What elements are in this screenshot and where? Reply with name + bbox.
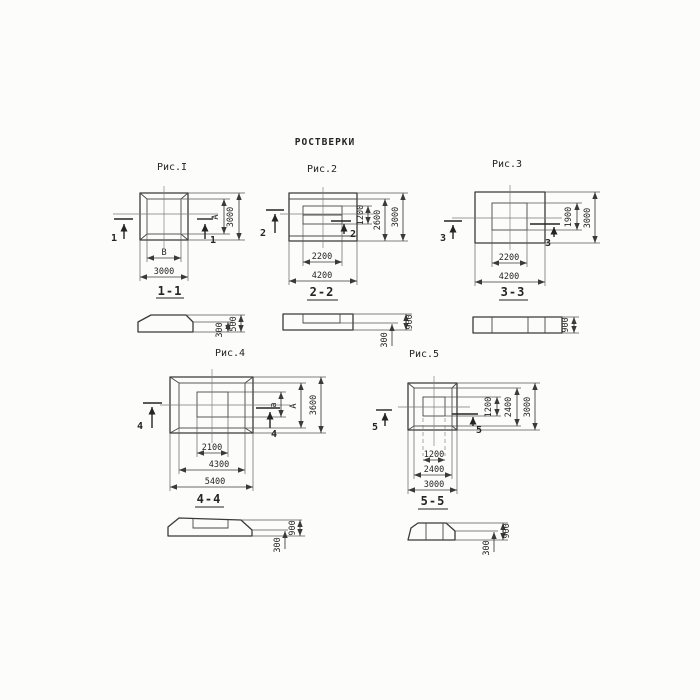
fig5-section-label-300: 300: [482, 540, 492, 555]
fig3-dim-label-2200: 2200: [499, 253, 519, 263]
fig5-cut-number-left: 5: [372, 422, 378, 433]
fig4-dim-label-2100: 2100: [202, 443, 222, 453]
fig1-dim-label-3000-v: 3000: [226, 207, 236, 227]
fig3-extension-lines: [475, 192, 600, 286]
fig2-section-label-300: 300: [380, 332, 390, 347]
fig3-cut-number-left: 3: [440, 233, 446, 244]
fig5-section-title: 5-5: [421, 494, 446, 508]
fig2-cut-number-left: 2: [260, 228, 266, 239]
fig4-dim-label-3600: 3600: [309, 395, 319, 415]
fig4-section-title: 4-4: [197, 492, 222, 506]
fig2-dim-label-2600: 2600: [373, 210, 383, 230]
sheet-title: РОСТВЕРКИ: [295, 137, 355, 148]
fig4-plan-inner: [197, 392, 228, 417]
fig4-dim-label-4300: 4300: [209, 460, 229, 470]
fig5-dim-label-2400-h: 2400: [424, 465, 444, 475]
fig1-cut-number-left: 1: [111, 233, 117, 244]
fig4-caption: Рис.4: [215, 348, 245, 359]
fig2-cut-number-right: 2: [350, 229, 356, 240]
fig2-section-leaders: [340, 314, 412, 330]
fig3-dim-label-3000: 3000: [583, 208, 593, 228]
fig1-section-label-300: 300: [215, 322, 225, 337]
fig3-section-title: 3-3: [501, 285, 526, 299]
fig1-dim-label-B: В: [161, 248, 166, 258]
fig2-dim-label-3000: 3000: [391, 207, 401, 227]
fig2-section-profile: [283, 314, 353, 330]
drawing-sheet: РОСТВЕРКИ Рис.I А 3000 В 3000 1 1 1-1 50…: [0, 0, 700, 700]
fig2-dim-label-4200: 4200: [312, 271, 332, 281]
figure-4: Рис.4 а А 3600 2100 4300 5400 4 4 4-4 90…: [137, 348, 326, 553]
fig5-dim-label-1200-v: 1200: [484, 397, 494, 417]
fig5-corner-bevels: [408, 383, 457, 430]
drawing-canvas: РОСТВЕРКИ Рис.I А 3000 В 3000 1 1 1-1 50…: [0, 0, 700, 700]
fig4-section-label-900: 900: [288, 520, 298, 535]
fig2-caption: Рис.2: [307, 164, 337, 175]
fig5-centerlines: [398, 376, 470, 446]
figure-1: Рис.I А 3000 В 3000 1 1 1-1 500 300: [111, 162, 245, 338]
fig3-section-profile: [473, 317, 562, 333]
fig3-dim-label-1900: 1900: [564, 207, 574, 227]
fig4-section-recess: [193, 519, 228, 528]
fig3-section-joints: [492, 317, 545, 333]
fig3-plan-inner: [492, 203, 527, 230]
fig5-extension-lines: [408, 383, 540, 494]
fig4-cut-number-left: 4: [137, 421, 143, 432]
fig1-dim-label-3000-h: 3000: [154, 267, 174, 277]
fig2-dim-label-1200: 1200: [356, 205, 366, 225]
fig5-dim-label-1200-h: 1200: [424, 450, 444, 460]
fig1-section-title: 1-1: [158, 284, 183, 298]
fig4-dim-label-A: А: [289, 403, 299, 408]
fig5-dim-label-3000-v: 3000: [523, 397, 533, 417]
fig4-extension-lines: [170, 377, 326, 491]
fig2-dim-label-2200: 2200: [312, 252, 332, 262]
fig5-section-label-900: 900: [502, 523, 512, 538]
fig1-cut-number-right: 1: [210, 235, 216, 246]
fig5-plan-outer: [408, 383, 457, 430]
fig4-section-label-300: 300: [273, 537, 283, 552]
fig4-cut-number-right: 4: [271, 429, 277, 440]
fig5-section-profile: [408, 523, 455, 540]
fig4-dim-label-5400: 5400: [205, 477, 225, 487]
fig4-dim-label-a: а: [269, 402, 279, 407]
figure-2: Рис.2 1200 2600 3000 2200 4200 2 2 2-2 9…: [260, 164, 415, 348]
fig1-caption: Рис.I: [157, 162, 187, 173]
fig1-section-label-500: 500: [229, 316, 239, 331]
fig5-section-joints: [426, 523, 443, 540]
fig2-section-recess: [303, 314, 340, 323]
fig5-dim-label-2400-v: 2400: [504, 397, 514, 417]
fig3-dim-label-4200: 4200: [499, 272, 519, 282]
figure-3: Рис.3 1900 3000 2200 4200 3 3 3-3 900: [440, 159, 600, 333]
fig5-caption: Рис.5: [409, 349, 439, 360]
fig5-cut-number-right: 5: [476, 425, 482, 436]
fig2-section-label-900: 900: [405, 314, 415, 329]
fig2-section-title: 2-2: [310, 285, 335, 299]
fig1-section-profile: [138, 315, 193, 332]
fig1-centerlines: [113, 186, 218, 248]
fig5-dim-label-3000-h: 3000: [424, 480, 444, 490]
fig3-section-label-900: 900: [561, 317, 571, 332]
fig4-section-profile: [168, 518, 252, 536]
fig3-caption: Рис.3: [492, 159, 522, 170]
figure-5: Рис.5 1200 2400 3000 1200 2400 3000 5 5 …: [372, 349, 540, 556]
fig3-cut-number-right: 3: [545, 238, 551, 249]
